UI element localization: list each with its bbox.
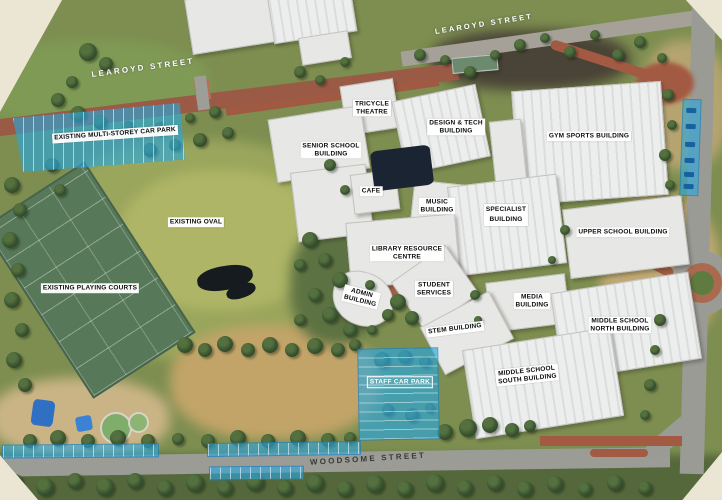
tree <box>337 481 353 497</box>
tree <box>437 424 453 440</box>
label-tricycle-theatre: TRICYCLE THEATRE <box>353 100 391 117</box>
tree <box>366 475 384 493</box>
label-design-tech-building: DESIGN & TECH BUILDING <box>427 119 485 136</box>
tree <box>110 430 126 446</box>
tree <box>667 120 677 130</box>
parked-car <box>685 142 695 147</box>
tree <box>2 232 18 248</box>
roundabout-centre <box>690 271 714 295</box>
tree <box>307 338 323 354</box>
playground-canopy-2 <box>75 415 93 433</box>
tree <box>172 433 184 445</box>
tree <box>6 352 22 368</box>
tree <box>382 309 394 321</box>
label-staff-car-park: STAFF CAR PARK <box>367 376 433 388</box>
highlight-staff-car-park <box>358 348 439 439</box>
tree <box>294 66 306 78</box>
tree <box>487 475 503 491</box>
aerial-photo: LEAROYD STREET LEAROYD STREET WOODSOME S… <box>0 0 722 500</box>
tree <box>193 133 207 147</box>
highlight-on-street-parking-north-1 <box>3 444 158 457</box>
tree <box>217 336 233 352</box>
tree <box>367 325 377 335</box>
tree <box>331 343 345 357</box>
tree <box>186 474 204 492</box>
tree <box>490 50 500 60</box>
tree <box>96 478 114 496</box>
tree <box>517 481 533 497</box>
playground-pool-2 <box>128 412 149 433</box>
tree <box>15 323 29 337</box>
tree <box>464 66 476 78</box>
tree <box>659 149 671 161</box>
tree <box>365 280 375 290</box>
aerial-site-plan: LEAROYD STREET LEAROYD STREET WOODSOME S… <box>0 0 722 500</box>
tree <box>198 343 212 357</box>
tree <box>560 225 570 235</box>
tree <box>222 127 234 139</box>
tree <box>638 481 652 495</box>
tree <box>457 480 473 496</box>
tree <box>343 323 357 337</box>
tree <box>185 113 195 123</box>
label-music-building: MUSIC BUILDING <box>418 198 455 215</box>
label-existing-playing-courts: EXISTING PLAYING COURTS <box>41 283 139 293</box>
tree <box>514 39 526 51</box>
shade-sails <box>370 144 434 191</box>
tree <box>294 314 306 326</box>
label-library-resource-centre: LIBRARY RESOURCE CENTRE <box>370 245 444 262</box>
tree <box>547 476 563 492</box>
tree <box>650 345 660 355</box>
tree <box>390 294 406 310</box>
tree <box>470 290 480 300</box>
tree <box>302 232 318 248</box>
playground-canopy <box>30 399 55 428</box>
tree <box>440 55 450 65</box>
tree <box>4 292 20 308</box>
tree <box>308 288 322 302</box>
parked-car <box>684 172 694 177</box>
tree <box>7 474 23 490</box>
tree <box>217 480 233 496</box>
tree <box>397 481 413 497</box>
tree <box>548 256 556 264</box>
label-upper-school-building: UPPER SCHOOL BUILDING <box>576 227 669 237</box>
tree <box>564 46 576 58</box>
tree <box>640 410 650 420</box>
parked-car <box>686 124 696 129</box>
tree <box>67 473 83 489</box>
tree <box>306 474 324 492</box>
tree <box>50 430 66 446</box>
tree <box>36 478 54 496</box>
tree <box>607 475 623 491</box>
tree <box>318 253 332 267</box>
tree <box>482 417 498 433</box>
tree <box>340 57 350 67</box>
label-media-building: MEDIA BUILDING <box>513 293 550 310</box>
building-gym-annex <box>489 118 527 183</box>
tree <box>157 480 173 496</box>
tree <box>414 49 426 61</box>
label-gym-sports-building: GYM SPORTS BUILDING <box>547 131 631 141</box>
tree <box>612 49 624 61</box>
tree <box>241 343 255 357</box>
tree <box>578 482 592 496</box>
median-island <box>590 449 648 457</box>
tree <box>177 337 193 353</box>
tree <box>505 423 519 437</box>
highlight-on-street-parking-south <box>210 467 303 480</box>
tree <box>634 36 646 48</box>
tree <box>340 185 350 195</box>
tree <box>665 180 675 190</box>
tree <box>54 184 66 196</box>
tree <box>540 33 550 43</box>
tree <box>127 473 143 489</box>
tree <box>426 474 444 492</box>
tree <box>277 480 293 496</box>
label-senior-school-building: SENIOR SCHOOL BUILDING <box>300 142 361 159</box>
tree <box>13 203 27 217</box>
label-cafe: CAFE <box>360 186 383 196</box>
parked-car <box>684 158 694 163</box>
label-existing-oval: EXISTING OVAL <box>168 217 224 227</box>
tree <box>51 93 65 107</box>
tree <box>459 419 477 437</box>
tree <box>4 177 20 193</box>
parked-car <box>686 108 696 113</box>
tree <box>322 307 338 323</box>
tree <box>11 263 25 277</box>
tree <box>315 75 325 85</box>
tree <box>79 43 97 61</box>
tree <box>324 159 336 171</box>
tree <box>524 420 536 432</box>
tree <box>654 314 666 326</box>
tree <box>285 343 299 357</box>
tree <box>662 89 674 101</box>
label-middle-school-north-building: MIDDLE SCHOOL NORTH BUILDING <box>588 317 651 334</box>
highlight-on-street-parking-north-2 <box>208 442 360 456</box>
label-student-services: STUDENT SERVICES <box>415 281 453 298</box>
tree <box>66 76 78 88</box>
tree <box>18 378 32 392</box>
tree <box>405 311 419 325</box>
tree <box>657 53 667 63</box>
tree <box>294 259 306 271</box>
tree <box>262 337 278 353</box>
tree <box>590 30 600 40</box>
label-specialist-building: SPECIALIST BUILDING <box>484 204 528 226</box>
tree <box>644 379 656 391</box>
building-upper-school <box>562 195 690 279</box>
highlight-on-street-parking-east <box>680 100 700 196</box>
brick-verge <box>540 436 682 446</box>
tree <box>209 106 221 118</box>
parked-car <box>684 184 694 189</box>
